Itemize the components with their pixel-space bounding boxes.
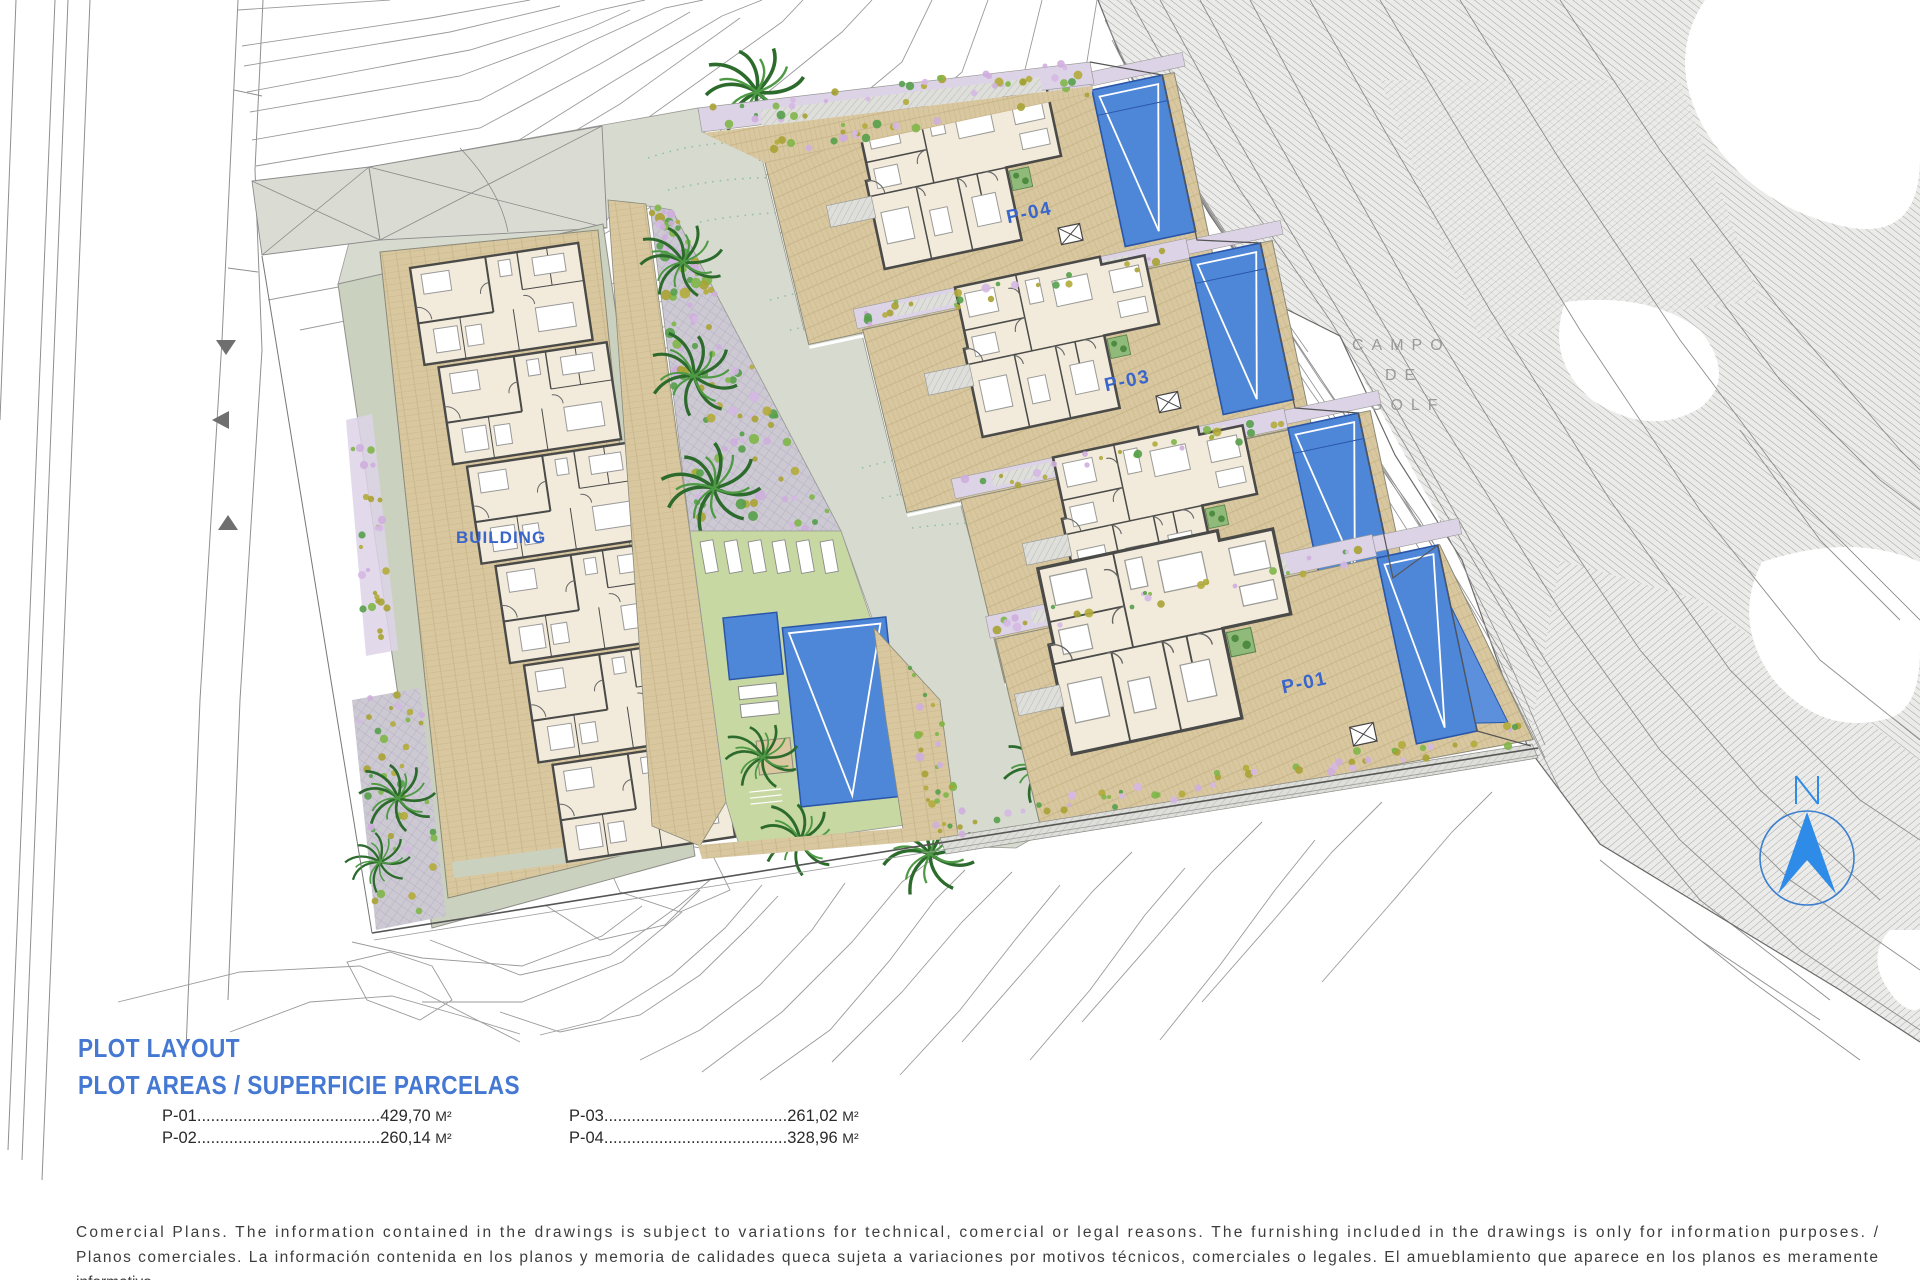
svg-text:GOLF: GOLF xyxy=(1370,397,1446,414)
svg-text:Comercial Plans. The informati: Comercial Plans. The information contain… xyxy=(76,1224,1879,1241)
svg-text:PLOT AREAS / SUPERFICIE PARCEL: PLOT AREAS / SUPERFICIE PARCELAS xyxy=(78,1070,520,1100)
svg-text:P-04..........................: P-04....................................… xyxy=(569,1129,859,1147)
svg-text:informativo.: informativo. xyxy=(76,1274,156,1280)
svg-text:DE: DE xyxy=(1385,367,1423,384)
svg-text:Planos comerciales. La informa: Planos comerciales. La información conte… xyxy=(76,1249,1878,1266)
svg-text:P-01..........................: P-01....................................… xyxy=(162,1107,452,1125)
svg-text:BUILDING: BUILDING xyxy=(456,528,546,547)
svg-text:CAMPO: CAMPO xyxy=(1352,337,1451,354)
svg-text:P-02..........................: P-02....................................… xyxy=(162,1129,452,1147)
svg-text:P-03..........................: P-03....................................… xyxy=(569,1107,859,1125)
svg-text:PLOT LAYOUT: PLOT LAYOUT xyxy=(78,1033,240,1063)
